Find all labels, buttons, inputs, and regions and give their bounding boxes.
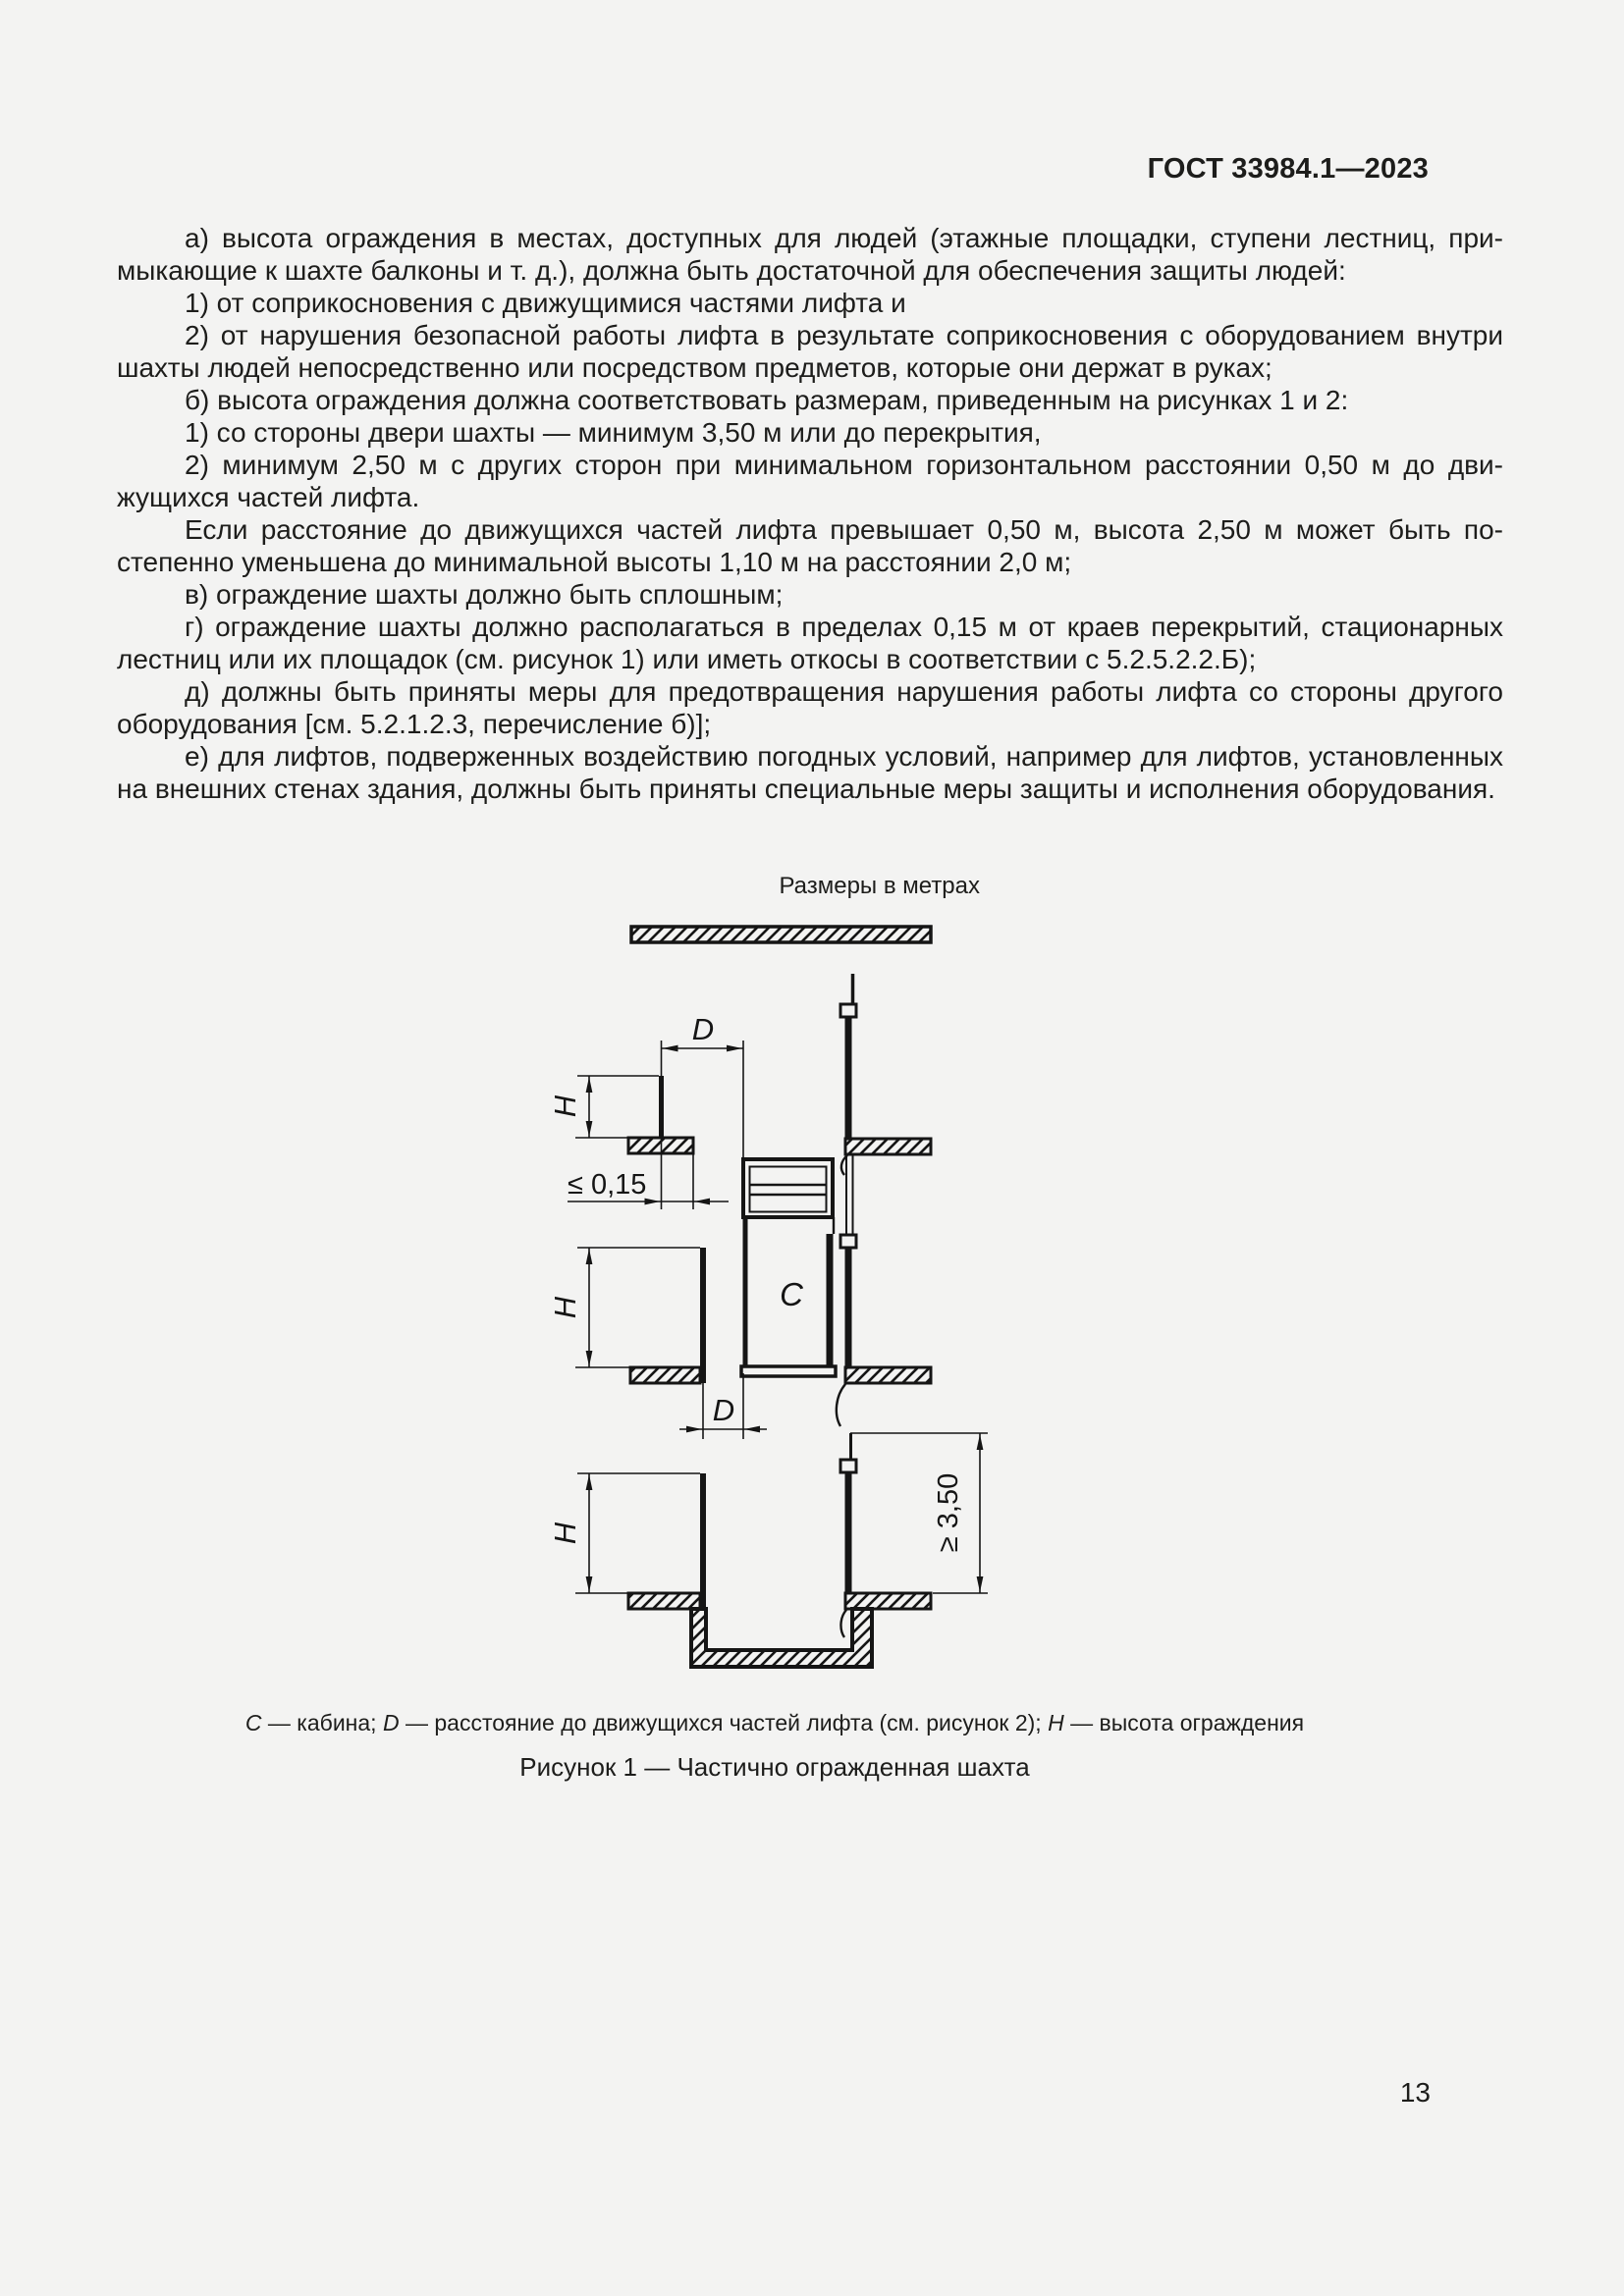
paragraph-e: е) для лифтов, подверженных воздействию … (117, 740, 1503, 805)
paragraph-a: а) высота ограждения в местах, доступных… (117, 222, 1503, 287)
paragraph-d: д) должны быть приняты меры для предотвр… (117, 675, 1503, 740)
landing-door-line (837, 974, 856, 1637)
dim-value-offset: ≤ 0,15 (568, 1169, 646, 1201)
dim-label-h-lower: H (548, 1522, 582, 1544)
figure-title: Рисунок 1 — Частично огражденная шахта (117, 1752, 1433, 1783)
caption-var-d: D (383, 1710, 400, 1735)
dimension-lines (568, 1048, 980, 1593)
paragraph-a1: 1) от соприкосновения с движущимися част… (117, 287, 1503, 319)
dim-label-h-middle: H (548, 1296, 582, 1318)
caption-var-c: C (245, 1710, 262, 1735)
caption-text-h: — высота ограждения (1064, 1710, 1304, 1735)
figure-caption: C — кабина; D — расстояние до движущихся… (117, 1710, 1433, 1736)
paragraph-b1: 1) со стороны двери шахты — минимум 3,50… (117, 416, 1503, 449)
paragraph-a2: 2) от нарушения безопасной работы лифта … (117, 319, 1503, 384)
page-number: 13 (1400, 2077, 1431, 2109)
ceiling-slab (631, 927, 931, 942)
caption-text-d: — расстояние до движущихся частей лифта … (400, 1710, 1049, 1735)
body-text: а) высота ограждения в местах, доступных… (117, 222, 1503, 805)
dim-label-h-upper: H (548, 1095, 582, 1117)
units-note: Размеры в метрах (779, 873, 980, 900)
paragraph-b2-note: Если расстояние до движущихся частей лиф… (117, 513, 1503, 578)
shaft-fence (662, 1076, 704, 1609)
dim-label-d-upper: D (692, 1012, 714, 1046)
caption-text-c: — кабина; (262, 1710, 383, 1735)
figure-1-drawing: D D H H H C ≤ 0,15 ≥ 3,50 (540, 913, 1011, 1688)
paragraph-v: в) ограждение шахты должно быть сплошным… (117, 578, 1503, 611)
paragraph-b2: 2) минимум 2,50 м с других сторон при ми… (117, 449, 1503, 513)
document-page: { "page": { "header": "ГОСТ 33984.1—2023… (0, 0, 1624, 2296)
document-code-header: ГОСТ 33984.1—2023 (1148, 153, 1429, 186)
dim-value-door-height: ≥ 3,50 (933, 1473, 964, 1552)
paragraph-g: г) ограждение шахты должно располагаться… (117, 611, 1503, 675)
dimension-arrowheads (586, 1045, 984, 1592)
shaft-pit (691, 1609, 872, 1667)
paragraph-b: б) высота ограждения должна соответствов… (117, 384, 1503, 416)
dim-label-d-lower: D (713, 1393, 734, 1427)
elevator-cabin (741, 1159, 836, 1376)
extension-lines (575, 1041, 988, 1593)
caption-var-h: H (1048, 1710, 1064, 1735)
cabin-label: C (780, 1276, 804, 1312)
